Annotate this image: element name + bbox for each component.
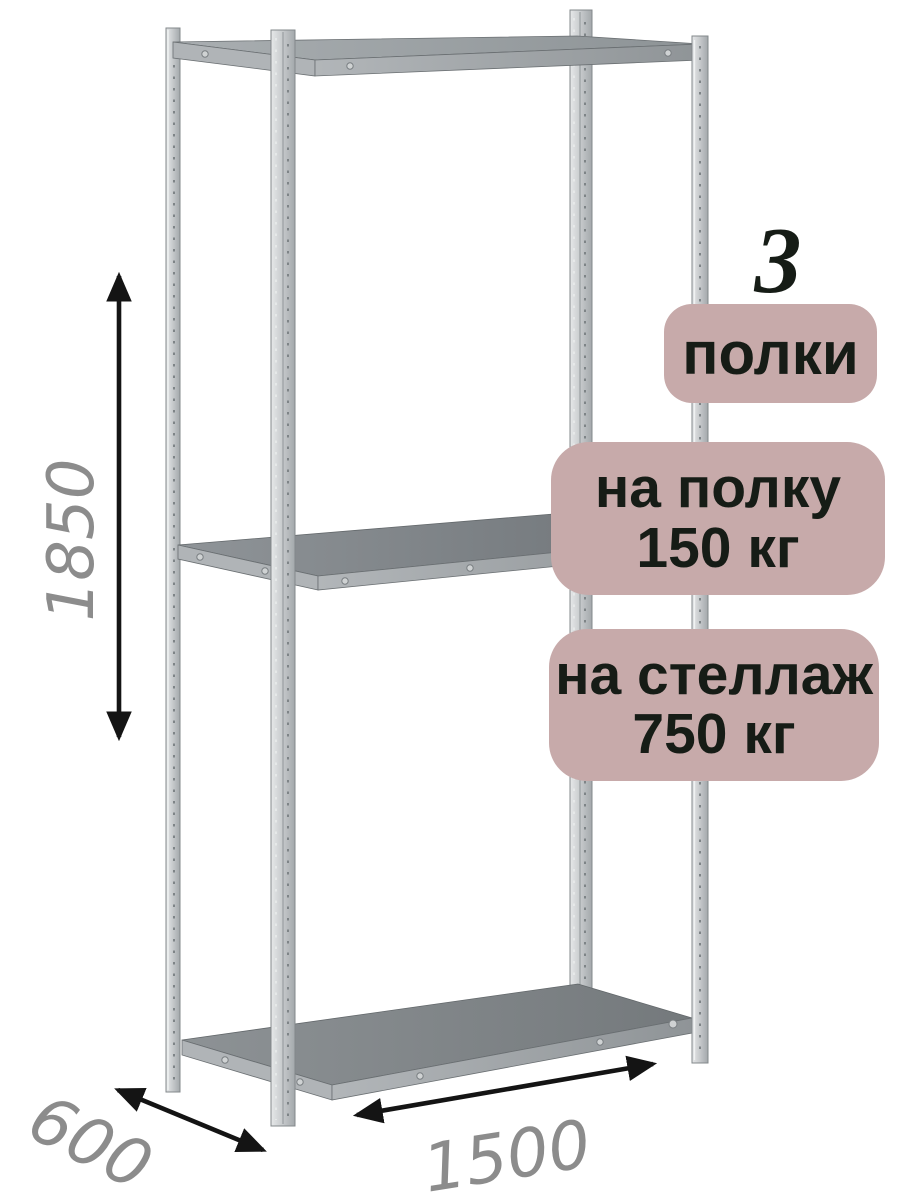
shelving-rack-illustration xyxy=(0,0,900,1200)
bottom-shelf xyxy=(182,984,692,1100)
top-shelf xyxy=(173,36,701,76)
post-front-left xyxy=(271,30,295,1126)
shelf-count-label: полки xyxy=(682,319,858,388)
shelf-count-badge: полки xyxy=(664,304,877,403)
post-back-left xyxy=(166,28,180,1092)
rack-load-line1: на стеллаж xyxy=(555,646,873,705)
shelf-count-number: 3 xyxy=(733,210,823,312)
shelf-load-badge: на полку 150 кг xyxy=(551,442,885,595)
product-image: 1850 600 1500 3 полки на полку 150 кг на… xyxy=(0,0,900,1200)
height-dimension-label: 1850 xyxy=(32,448,112,632)
rack-load-line2: 750 кг xyxy=(632,705,795,764)
rack-load-badge: на стеллаж 750 кг xyxy=(549,629,879,781)
shelf-load-line1: на полку xyxy=(595,459,841,518)
shelf-load-line2: 150 кг xyxy=(636,519,799,578)
